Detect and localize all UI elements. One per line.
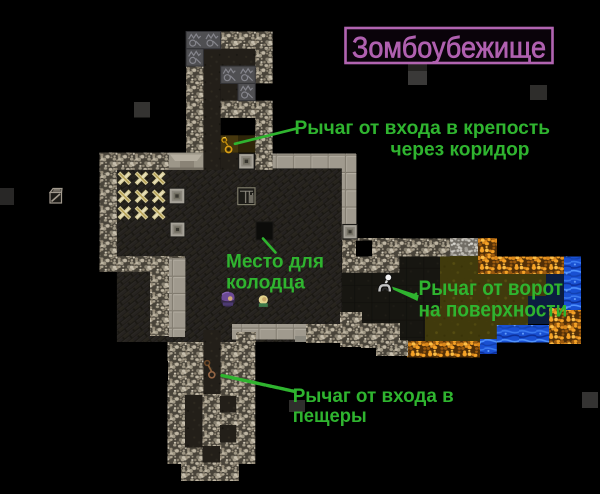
svg-text:Зомбоубежище: Зомбоубежище xyxy=(352,32,546,65)
svg-text:колодца: колодца xyxy=(226,272,305,294)
svg-text:на поверхности: на поверхности xyxy=(419,299,568,322)
svg-text:Рычаг от ворот: Рычаг от ворот xyxy=(419,277,564,300)
svg-text:Место для: Место для xyxy=(226,250,324,272)
svg-text:пещеры: пещеры xyxy=(293,405,367,427)
svg-text:Рычаг от входа в крепость: Рычаг от входа в крепость xyxy=(295,117,551,139)
svg-text:Рычаг от входа в: Рычаг от входа в xyxy=(293,385,454,407)
svg-text:через коридор: через коридор xyxy=(391,139,530,161)
